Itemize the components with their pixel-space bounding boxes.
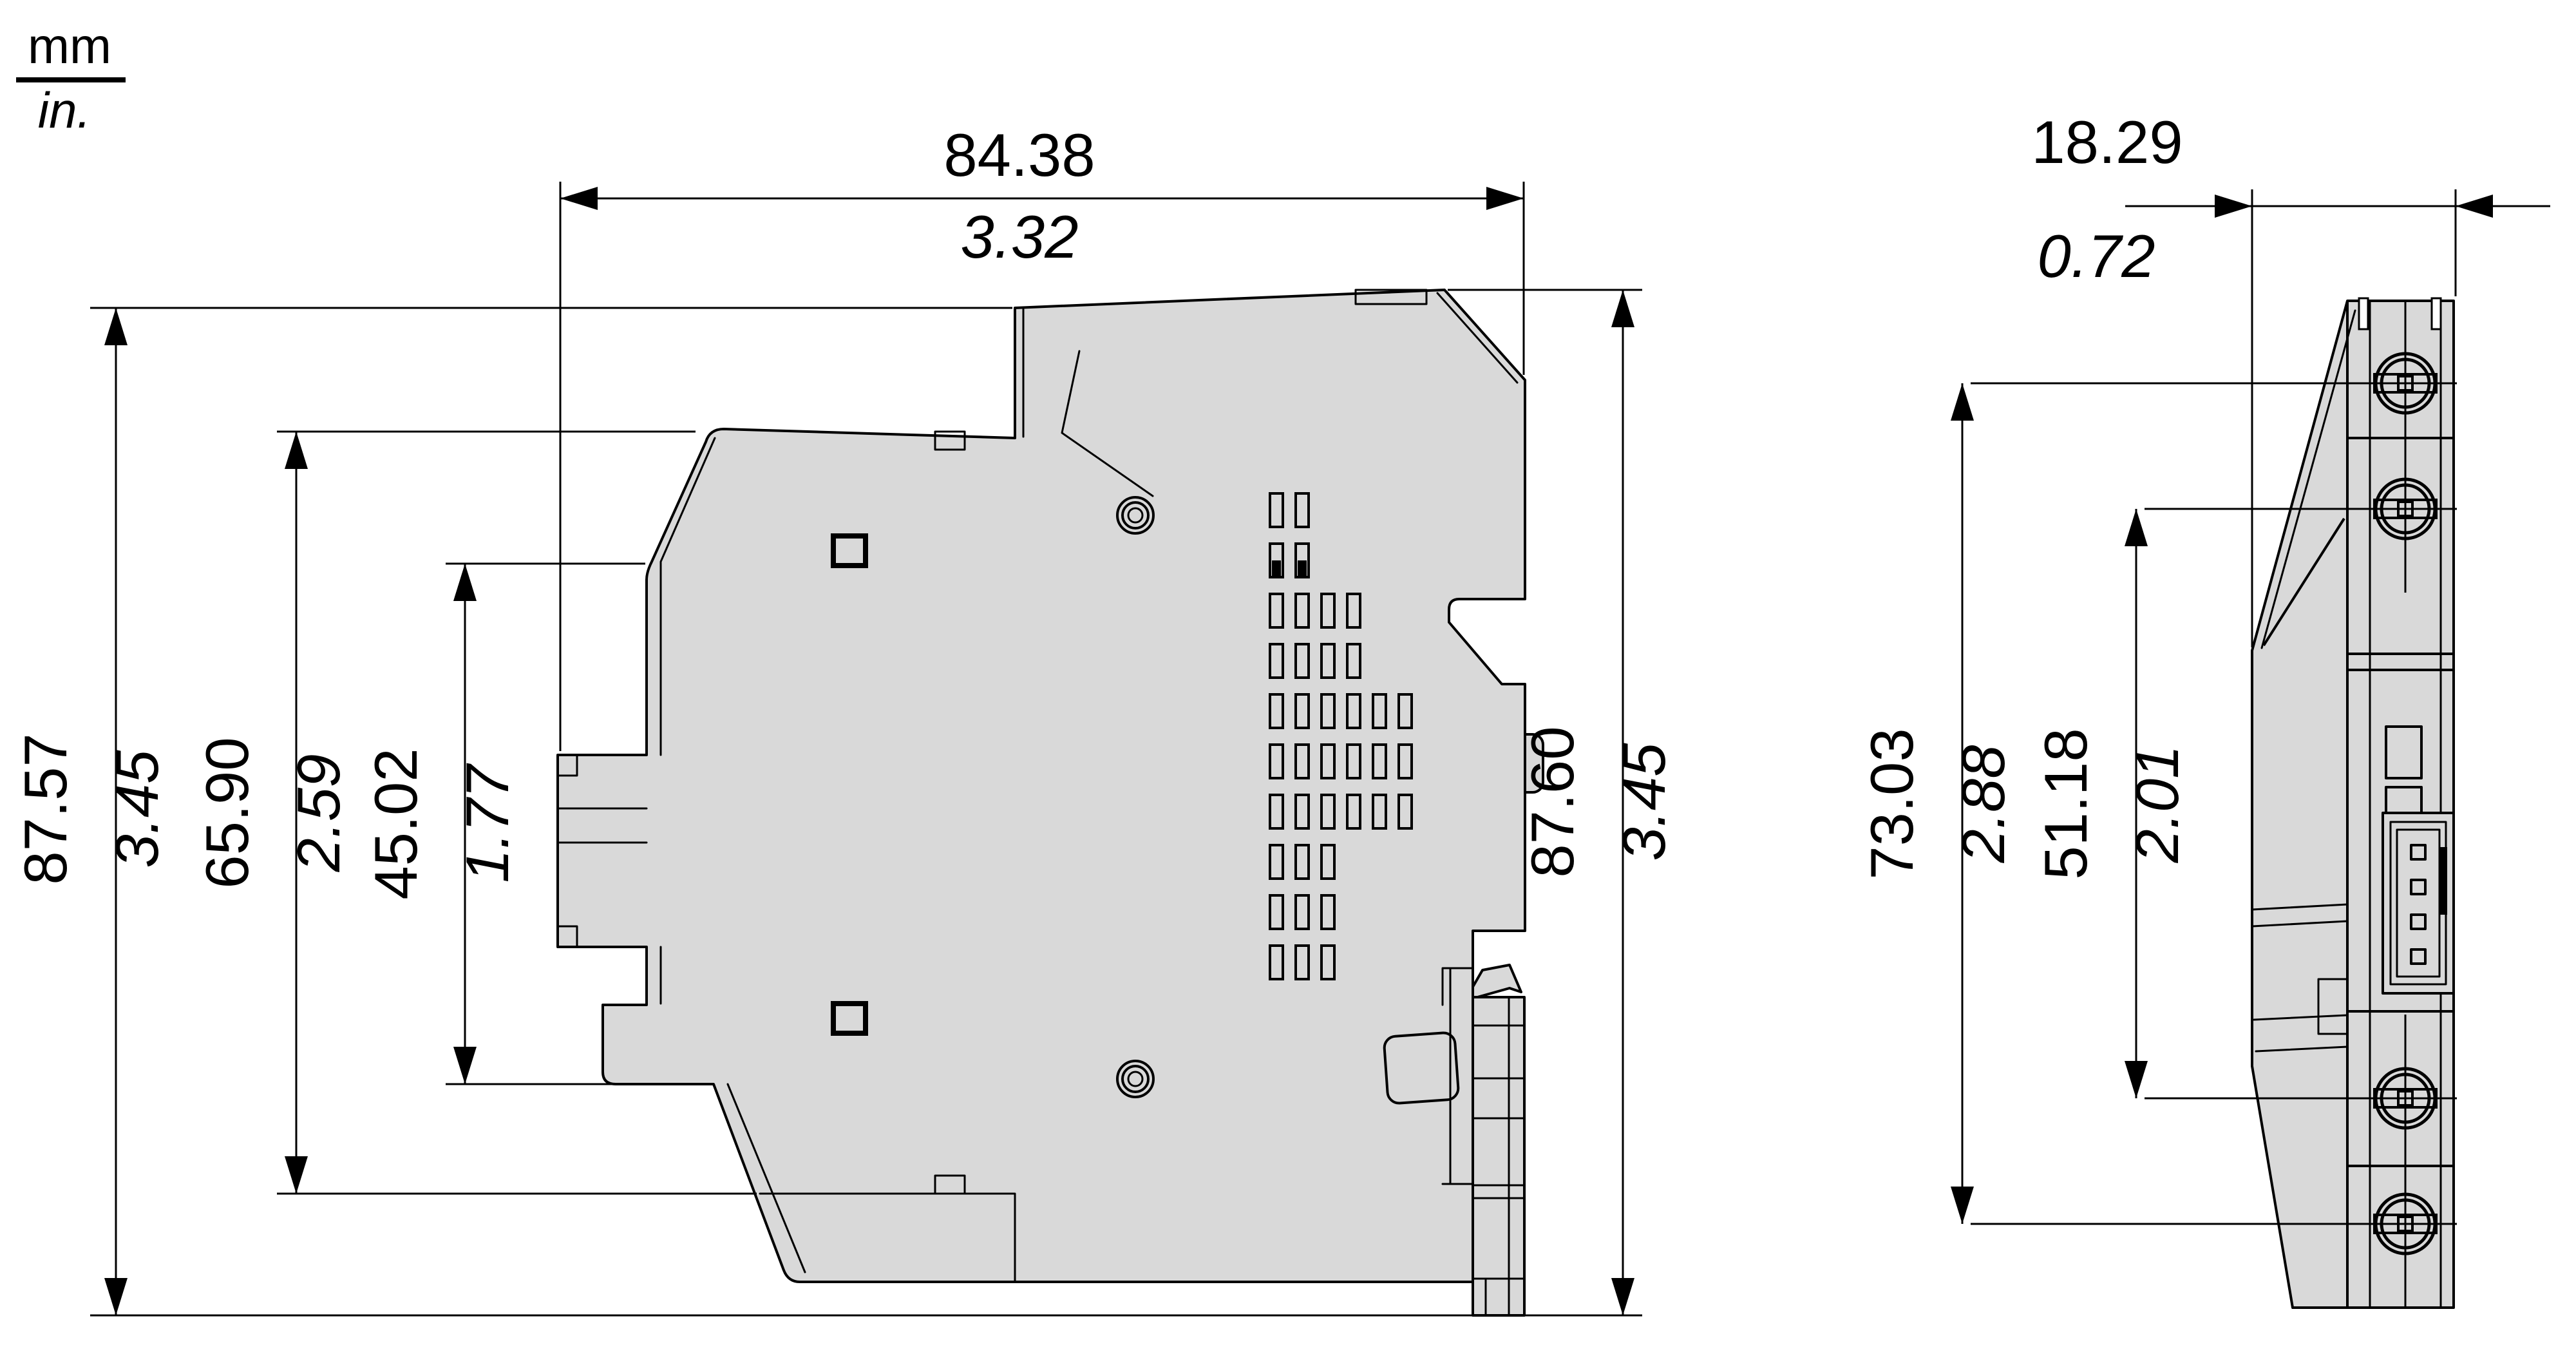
dimension-arrow: [1611, 1278, 1634, 1315]
dimension-arrow: [2125, 509, 2148, 546]
dim-mid_height-in-label: 2.59: [285, 754, 352, 873]
dim-overall_height_rear-mm-label: 87.60: [1519, 726, 1586, 877]
dim-depth-mm-label: 18.29: [2031, 108, 2183, 176]
dimension-arrow: [453, 564, 477, 601]
dimension-arrow: [1486, 187, 1524, 210]
dimension-arrow: [2125, 1061, 2148, 1098]
dimension-arrow: [1951, 383, 1974, 421]
din-clip-slider: [1473, 997, 1524, 1315]
dimension-arrow: [104, 1278, 128, 1315]
dim-depth-in-label: 0.72: [2038, 222, 2155, 290]
dimension-arrow: [285, 1156, 308, 1194]
units-label: mm in.: [16, 17, 126, 138]
dim-terminal_span_inner-in-label: 2.01: [2123, 745, 2191, 864]
dimension-arrow: [1611, 290, 1634, 327]
top-slot-right: [2432, 298, 2441, 329]
dimension-arrow: [560, 187, 598, 210]
dim-overall_width-mm-label: 84.38: [943, 121, 1095, 189]
dim-overall_height_rear-in-label: 3.45: [1610, 743, 1678, 861]
top-slot-left: [2359, 298, 2368, 329]
dim-mid_height: 65.902.59: [193, 432, 352, 1194]
connector-socket: [2383, 813, 2454, 993]
dimension-arrow: [1951, 1187, 1974, 1224]
technical-drawing: mm in.: [0, 0, 2576, 1345]
dimension-arrow: [2215, 195, 2252, 218]
dim-overall_width: 84.383.32: [560, 121, 1524, 271]
dim-overall_height_rear: 87.603.45: [1519, 290, 1678, 1315]
vent-slot-indicator: [1272, 560, 1281, 576]
dim-front_face_height-mm-label: 45.02: [362, 748, 430, 899]
side-view-body: [558, 290, 1525, 1282]
dimension-drawing-page: mm in.: [0, 0, 2576, 1345]
dimension-arrow: [453, 1047, 477, 1084]
din-clip-latch-tongue: [1384, 1032, 1459, 1103]
side-view: [558, 290, 1543, 1315]
end-view: [2252, 298, 2457, 1308]
dim-terminal_span_outer-in-label: 2.88: [1949, 745, 2017, 864]
units-mm-label: mm: [28, 17, 111, 74]
dim-overall_height_front-mm-label: 87.57: [12, 733, 79, 884]
dimension-arrow: [285, 432, 308, 469]
vent-slot-indicator: [1298, 560, 1307, 576]
dim-mid_height-mm-label: 65.90: [193, 737, 261, 888]
units-in-label: in.: [38, 82, 91, 138]
dim-depth: 18.290.72: [2031, 108, 2550, 290]
dim-terminal_span_outer: 73.032.88: [1858, 383, 2017, 1224]
dim-overall_height_front: 87.573.45: [12, 308, 171, 1315]
dimension-arrow: [104, 308, 128, 345]
dimension-arrow: [2456, 195, 2493, 218]
dim-terminal_span_inner: 51.182.01: [2032, 509, 2191, 1098]
dim-terminal_span_inner-mm-label: 51.18: [2032, 728, 2099, 879]
end-view-body: [2252, 301, 2454, 1308]
din-clip-hook: [1473, 965, 1521, 998]
dim-front_face_height-in-label: 1.77: [453, 763, 521, 883]
dim-terminal_span_outer-mm-label: 73.03: [1858, 728, 1926, 879]
dim-front_face_height: 45.021.77: [362, 564, 521, 1084]
connector-key-bar: [2439, 847, 2447, 915]
dim-overall_width-in-label: 3.32: [961, 203, 1079, 271]
dim-overall_height_front-in-label: 3.45: [103, 750, 171, 868]
